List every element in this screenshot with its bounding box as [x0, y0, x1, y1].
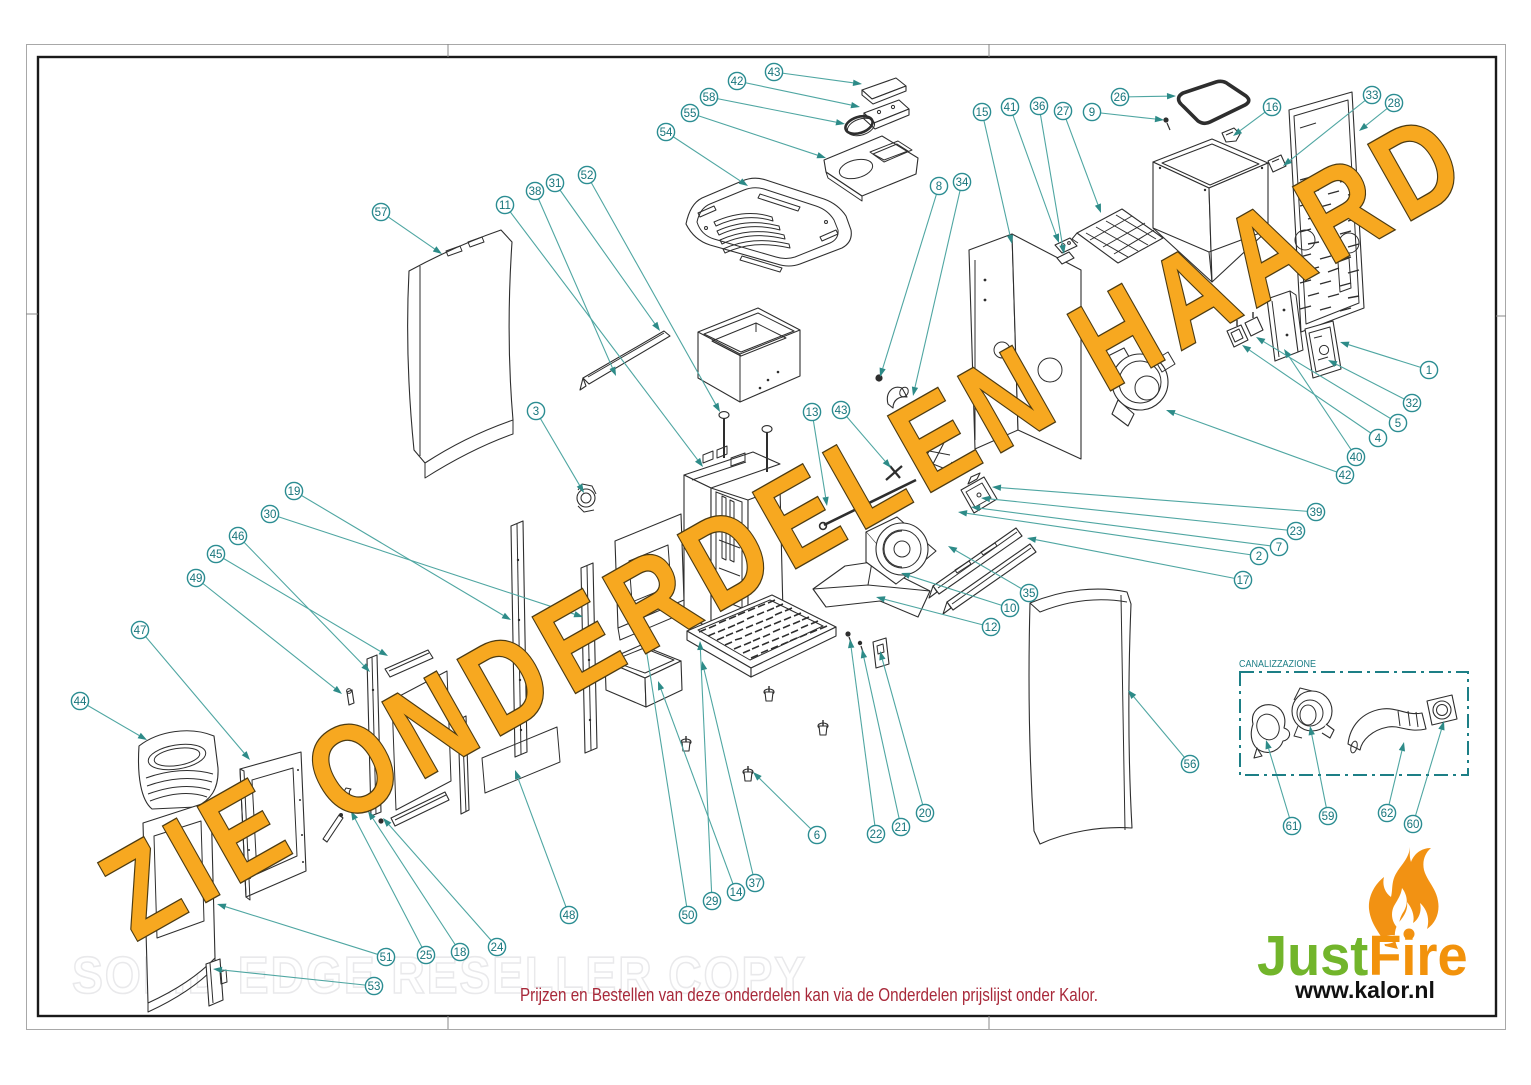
svg-text:6: 6 — [814, 830, 820, 842]
svg-text:41: 41 — [1004, 102, 1017, 114]
svg-text:23: 23 — [1290, 526, 1303, 538]
svg-text:33: 33 — [1366, 90, 1379, 102]
svg-text:32: 32 — [1406, 398, 1419, 410]
svg-text:24: 24 — [491, 942, 504, 954]
svg-text:8: 8 — [936, 181, 942, 193]
svg-text:31: 31 — [549, 178, 562, 190]
svg-text:5: 5 — [1395, 418, 1401, 430]
svg-text:26: 26 — [1114, 92, 1127, 104]
svg-text:1: 1 — [1426, 365, 1432, 377]
svg-text:50: 50 — [682, 910, 695, 922]
svg-text:56: 56 — [1184, 759, 1197, 771]
svg-text:34: 34 — [956, 177, 969, 189]
svg-text:CANALIZZAZIONE: CANALIZZAZIONE — [1239, 659, 1316, 670]
svg-text:57: 57 — [375, 207, 388, 219]
svg-text:44: 44 — [74, 696, 87, 708]
svg-text:4: 4 — [1375, 433, 1382, 445]
svg-text:42: 42 — [731, 76, 744, 88]
svg-text:36: 36 — [1033, 101, 1046, 113]
svg-text:www.kalor.nl: www.kalor.nl — [1294, 977, 1435, 1003]
svg-text:51: 51 — [380, 952, 393, 964]
svg-text:27: 27 — [1057, 106, 1070, 118]
svg-text:25: 25 — [420, 950, 433, 962]
svg-text:53: 53 — [368, 981, 381, 993]
svg-text:60: 60 — [1407, 819, 1420, 831]
svg-text:48: 48 — [563, 910, 576, 922]
svg-text:19: 19 — [288, 486, 301, 498]
svg-text:7: 7 — [1276, 542, 1282, 554]
svg-text:52: 52 — [581, 170, 594, 182]
svg-text:10: 10 — [1004, 603, 1017, 615]
svg-text:62: 62 — [1381, 808, 1394, 820]
svg-text:20: 20 — [919, 808, 932, 820]
svg-text:3: 3 — [533, 406, 539, 418]
svg-text:13: 13 — [806, 407, 819, 419]
svg-text:30: 30 — [264, 509, 277, 521]
svg-text:22: 22 — [870, 829, 883, 841]
svg-text:29: 29 — [706, 896, 719, 908]
svg-text:49: 49 — [190, 573, 203, 585]
svg-text:18: 18 — [454, 947, 467, 959]
svg-text:40: 40 — [1350, 452, 1363, 464]
svg-text:47: 47 — [134, 625, 147, 637]
svg-text:45: 45 — [210, 549, 223, 561]
svg-text:43: 43 — [768, 67, 781, 79]
svg-text:38: 38 — [529, 186, 542, 198]
svg-text:9: 9 — [1089, 107, 1095, 119]
svg-text:21: 21 — [895, 822, 908, 834]
svg-text:17: 17 — [1237, 575, 1250, 587]
svg-text:15: 15 — [976, 107, 989, 119]
svg-text:61: 61 — [1286, 821, 1299, 833]
svg-text:54: 54 — [660, 127, 673, 139]
svg-text:16: 16 — [1266, 102, 1279, 114]
svg-text:39: 39 — [1310, 507, 1323, 519]
svg-text:58: 58 — [703, 92, 716, 104]
svg-text:59: 59 — [1322, 811, 1335, 823]
svg-text:55: 55 — [684, 108, 697, 120]
svg-text:Prijzen en Bestellen van deze: Prijzen en Bestellen van deze onderdelen… — [520, 985, 1098, 1005]
svg-text:11: 11 — [499, 200, 511, 212]
svg-text:14: 14 — [730, 887, 743, 899]
svg-text:46: 46 — [232, 531, 245, 543]
svg-text:2: 2 — [1256, 551, 1262, 563]
svg-text:12: 12 — [985, 622, 998, 634]
svg-text:42: 42 — [1339, 470, 1352, 482]
svg-text:35: 35 — [1023, 588, 1036, 600]
svg-text:37: 37 — [749, 878, 762, 890]
